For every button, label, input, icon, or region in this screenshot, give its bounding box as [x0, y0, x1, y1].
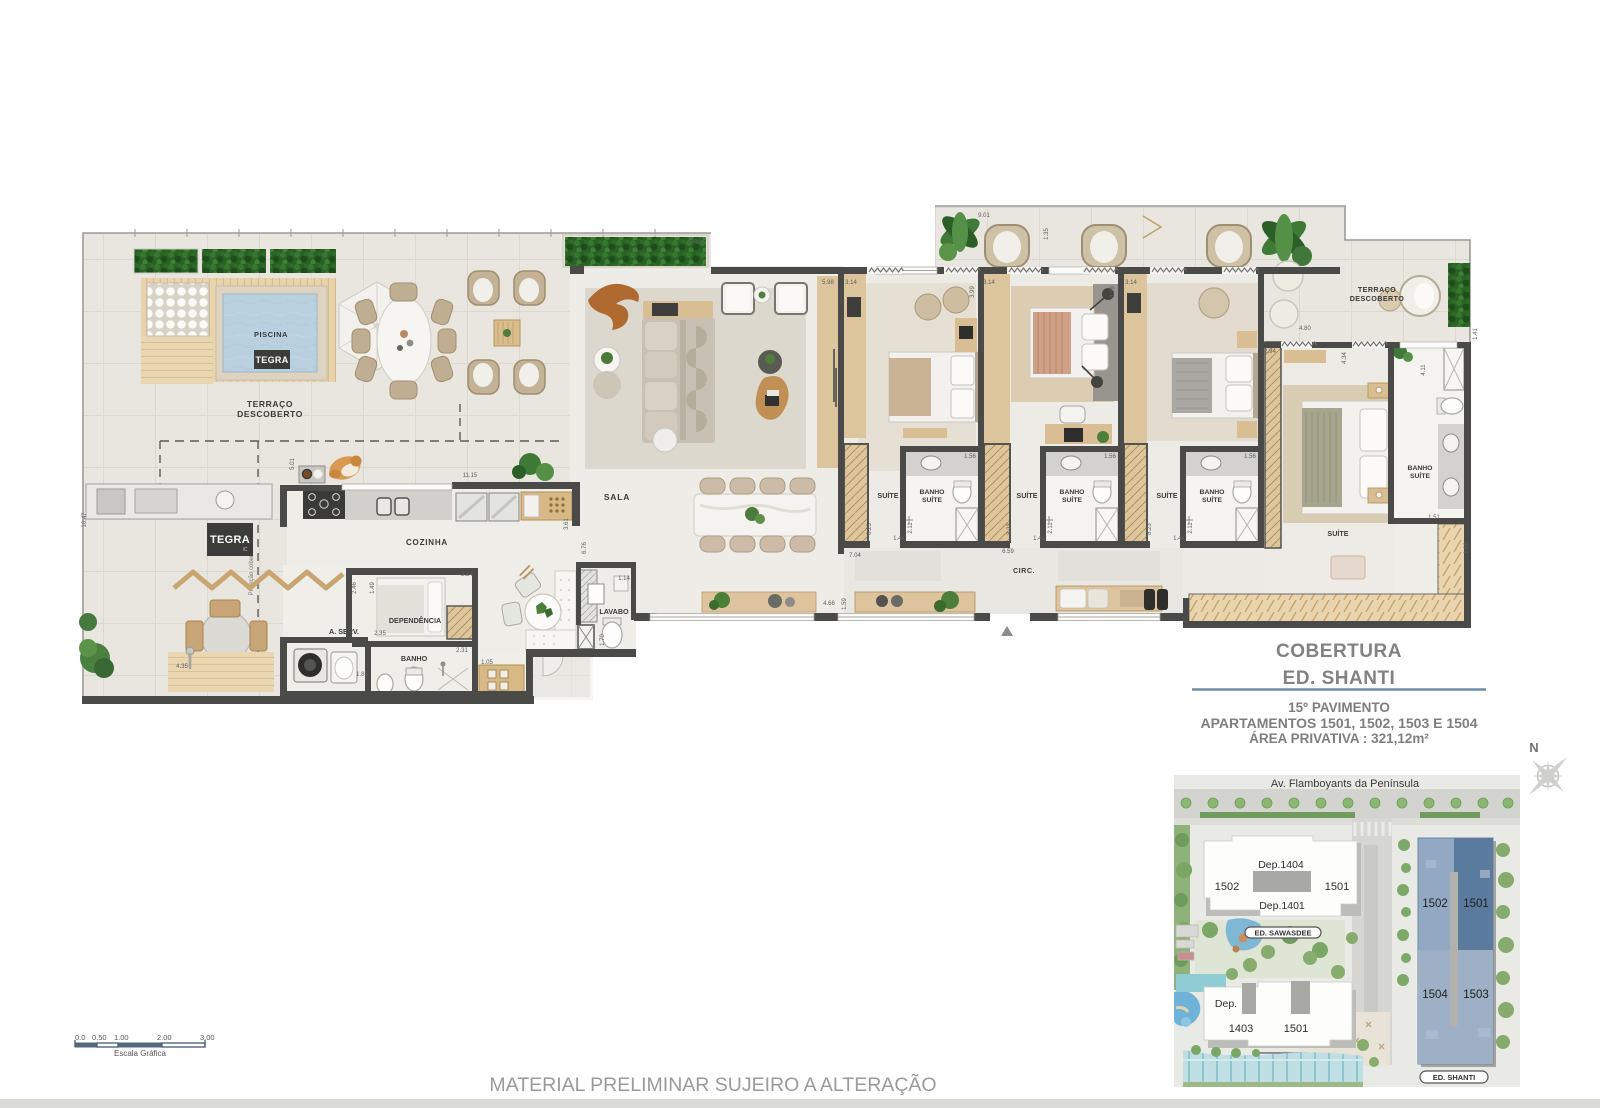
svg-text:2.31: 2.31 [456, 648, 468, 654]
svg-text:3.99: 3.99 [1110, 286, 1116, 298]
svg-text:SUÍTE: SUÍTE [1202, 495, 1222, 504]
svg-text:3.14: 3.14 [1125, 280, 1137, 286]
svg-text:1.66: 1.66 [1464, 542, 1470, 554]
svg-text:TEGRA: TEGRA [210, 534, 250, 546]
svg-text:1.56: 1.56 [1104, 454, 1116, 460]
svg-text:1.59: 1.59 [842, 598, 848, 610]
svg-text:COBERTURA: COBERTURA [1276, 641, 1402, 662]
svg-text:CIRC.: CIRC. [1013, 566, 1035, 575]
svg-text:BANHO: BANHO [1408, 465, 1433, 472]
svg-text:1501: 1501 [1284, 1023, 1308, 1035]
svg-text:2.00: 2.00 [157, 1033, 172, 1042]
svg-text:2.94: 2.94 [1264, 349, 1276, 355]
svg-text:TERRAÇO: TERRAÇO [1358, 285, 1396, 294]
svg-text:IC: IC [243, 547, 248, 553]
svg-text:0.50: 0.50 [92, 1033, 107, 1042]
svg-text:COZINHA: COZINHA [406, 538, 448, 547]
svg-text:3.99: 3.99 [970, 286, 976, 298]
svg-text:6.59: 6.59 [1002, 549, 1014, 555]
svg-text:DESCOBERTO: DESCOBERTO [237, 409, 303, 419]
svg-text:6.76: 6.76 [582, 542, 588, 554]
svg-text:1501: 1501 [1325, 881, 1349, 893]
svg-text:1.00: 1.00 [114, 1033, 129, 1042]
svg-text:ED. SAWASDEE: ED. SAWASDEE [1254, 929, 1311, 938]
svg-text:DEPENDÊNCIA: DEPENDÊNCIA [389, 616, 441, 625]
svg-text:8.23: 8.23 [867, 523, 873, 535]
svg-text:1.44: 1.44 [1033, 536, 1045, 542]
svg-text:4.66: 4.66 [823, 601, 835, 607]
svg-text:SUÍTE: SUÍTE [1410, 471, 1430, 480]
svg-text:1.56: 1.56 [1244, 454, 1256, 460]
svg-text:1.05: 1.05 [481, 660, 493, 666]
svg-text:BANHO: BANHO [920, 489, 945, 496]
svg-text:4.34: 4.34 [1342, 352, 1348, 364]
svg-text:0.0: 0.0 [75, 1033, 85, 1042]
svg-text:2.24: 2.24 [461, 572, 473, 578]
svg-text:1.81: 1.81 [356, 672, 368, 678]
svg-text:3.00: 3.00 [200, 1033, 215, 1042]
svg-text:Av. Flamboyants da Península: Av. Flamboyants da Península [1271, 778, 1420, 790]
svg-text:ED. SHANTI: ED. SHANTI [1433, 1073, 1476, 1082]
svg-text:4.11: 4.11 [1421, 364, 1427, 376]
svg-text:1.70: 1.70 [600, 634, 606, 646]
svg-text:N: N [1529, 740, 1538, 755]
svg-text:ÁREA PRIVATIVA : 321,12m²: ÁREA PRIVATIVA : 321,12m² [1249, 731, 1429, 746]
svg-text:1.51: 1.51 [1428, 515, 1440, 521]
svg-text:Escala Gráfica: Escala Gráfica [114, 1049, 167, 1058]
svg-text:1504: 1504 [1422, 989, 1448, 1001]
svg-text:15º PAVIMENTO: 15º PAVIMENTO [1288, 700, 1390, 715]
svg-text:1.44: 1.44 [893, 536, 905, 542]
svg-text:A. SERV.: A. SERV. [329, 627, 359, 636]
svg-text:1.49: 1.49 [370, 582, 376, 594]
svg-text:1.35: 1.35 [1044, 228, 1050, 240]
svg-text:BANHO: BANHO [1060, 489, 1085, 496]
svg-text:8.23: 8.23 [1147, 523, 1153, 535]
svg-text:SALA: SALA [604, 492, 630, 502]
svg-text:9.01: 9.01 [978, 213, 990, 219]
svg-text:APARTAMENTOS 1501, 1502, 1503: APARTAMENTOS 1501, 1502, 1503 E 1504 [1200, 715, 1477, 731]
svg-text:Dep.1404: Dep.1404 [1258, 859, 1304, 871]
svg-text:BANHO: BANHO [401, 654, 428, 663]
svg-text:1.44: 1.44 [1173, 536, 1185, 542]
svg-text:3.61: 3.61 [564, 518, 570, 530]
svg-text:SUÍTE: SUÍTE [1062, 495, 1082, 504]
svg-text:4.35: 4.35 [176, 664, 188, 670]
svg-text:2.11: 2.11 [1188, 522, 1194, 534]
svg-text:14.21: 14.21 [690, 239, 706, 245]
svg-text:1502: 1502 [1215, 881, 1239, 893]
svg-text:2.11: 2.11 [1048, 522, 1054, 534]
svg-text:8.23: 8.23 [1007, 523, 1013, 535]
svg-text:11.15: 11.15 [463, 473, 478, 479]
svg-text:2.46: 2.46 [352, 582, 358, 594]
svg-text:1501: 1501 [1463, 898, 1489, 910]
svg-text:1502: 1502 [1422, 898, 1448, 910]
svg-text:3.14: 3.14 [845, 280, 857, 286]
svg-text:Dep.: Dep. [1215, 998, 1237, 1010]
svg-text:4.80: 4.80 [1299, 326, 1311, 332]
svg-text:1403: 1403 [1229, 1023, 1253, 1035]
svg-text:SUÍTE: SUÍTE [1016, 491, 1037, 500]
svg-text:1503: 1503 [1463, 989, 1489, 1001]
svg-text:3.14: 3.14 [983, 280, 995, 286]
svg-text:2.11: 2.11 [908, 522, 914, 534]
svg-text:ED. SHANTI: ED. SHANTI [1283, 668, 1396, 689]
svg-text:SUÍTE: SUÍTE [877, 491, 898, 500]
svg-text:PISCINA: PISCINA [254, 330, 288, 339]
svg-text:10.47: 10.47 [82, 512, 88, 528]
svg-text:SUÍTE: SUÍTE [1156, 491, 1177, 500]
svg-text:LAVABO: LAVABO [599, 607, 629, 616]
svg-text:TEGRA: TEGRA [256, 355, 289, 365]
svg-text:1.41: 1.41 [1473, 328, 1479, 340]
svg-text:2.35: 2.35 [374, 631, 386, 637]
svg-text:7.04: 7.04 [849, 553, 861, 559]
svg-text:1.56: 1.56 [964, 454, 976, 460]
svg-text:TERRAÇO: TERRAÇO [247, 399, 293, 409]
svg-text:1.14: 1.14 [618, 576, 630, 582]
svg-text:SUÍTE: SUÍTE [922, 495, 942, 504]
svg-text:5.98: 5.98 [822, 280, 834, 286]
svg-text:BANHO: BANHO [1200, 489, 1225, 496]
svg-text:5.01: 5.01 [290, 458, 296, 470]
svg-text:MATERIAL PRELIMINAR SUJEIRO A: MATERIAL PRELIMINAR SUJEIRO A ALTERAÇÃO [489, 1072, 936, 1096]
svg-text:DESCOBERTO: DESCOBERTO [1350, 294, 1405, 303]
svg-text:Dep.1401: Dep.1401 [1259, 900, 1305, 912]
svg-text:SUÍTE: SUÍTE [1327, 529, 1348, 538]
